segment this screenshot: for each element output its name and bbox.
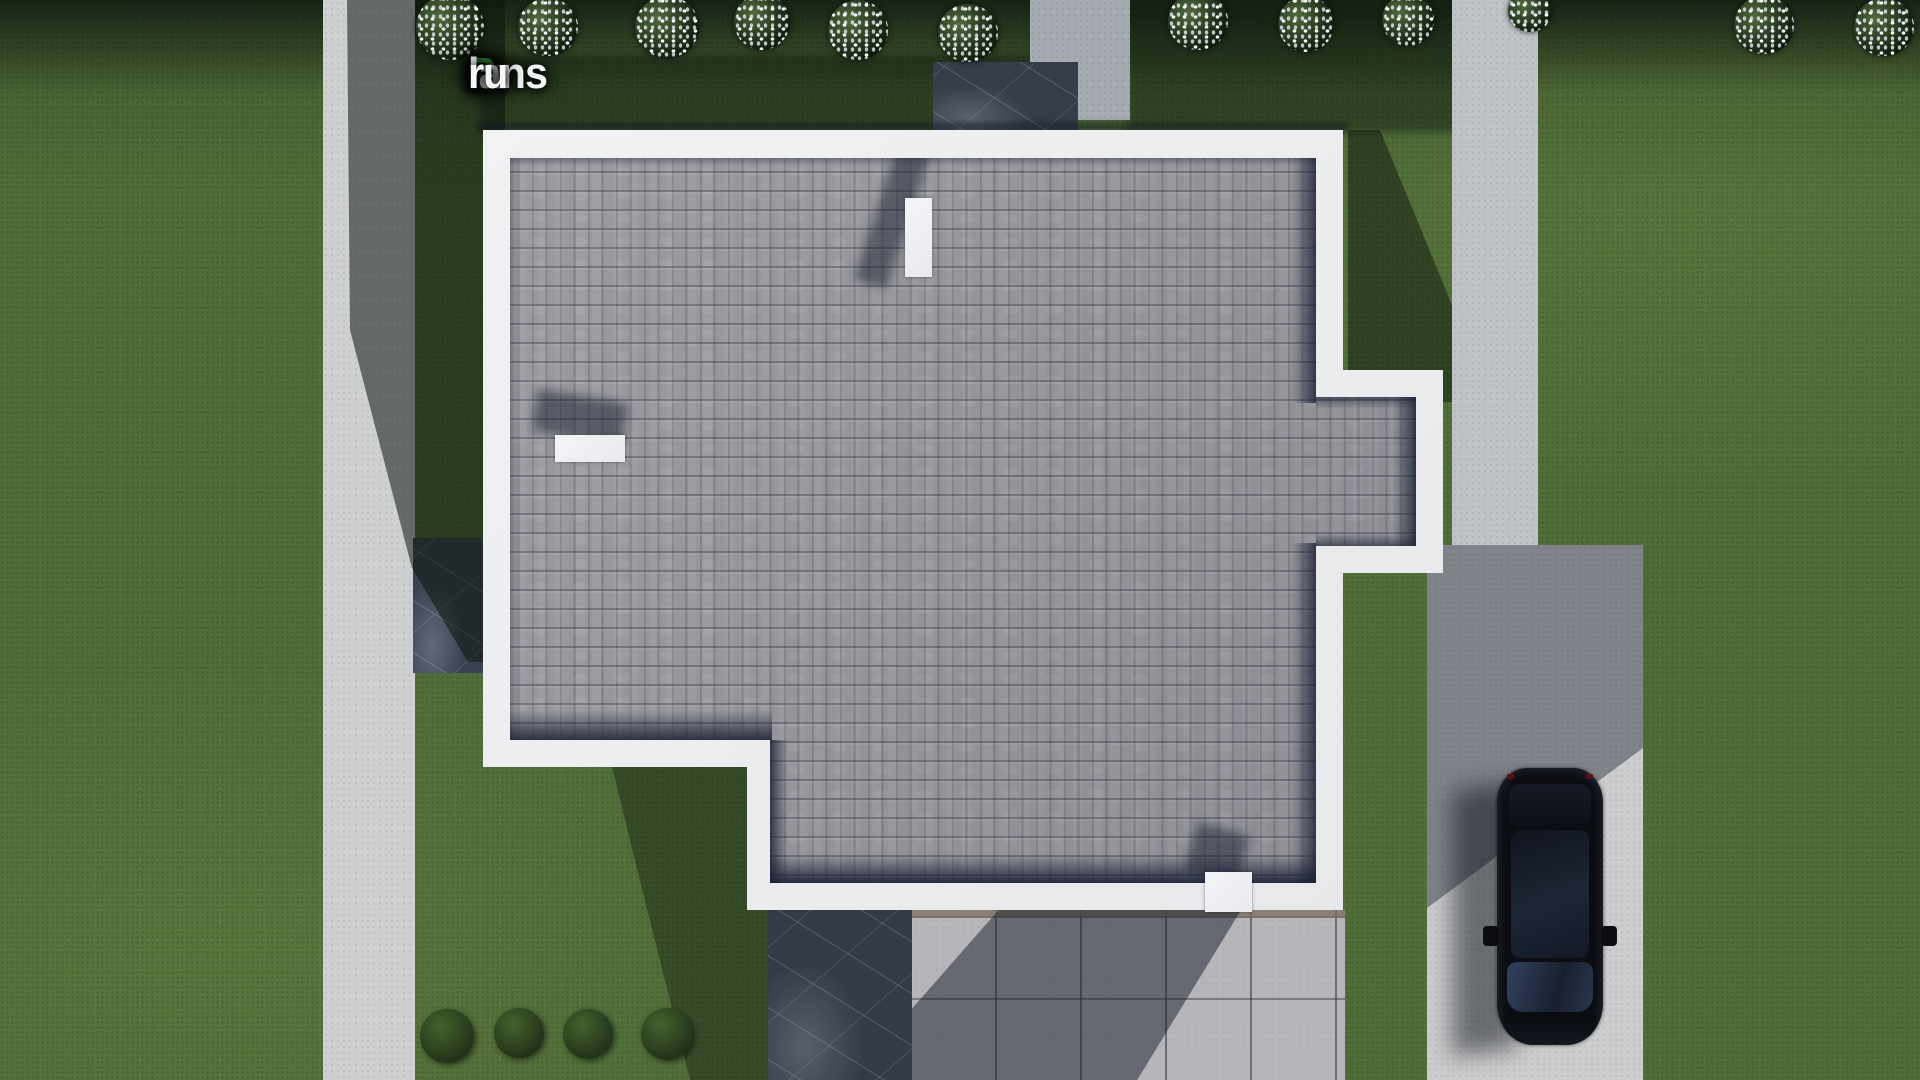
green-bush bbox=[641, 1008, 693, 1060]
car-taillight bbox=[1507, 774, 1514, 779]
roof-edge-shadow bbox=[1292, 158, 1316, 403]
site-plan-render: FixPlans.ru bbox=[0, 0, 1920, 1080]
green-bush bbox=[420, 1009, 474, 1063]
chimney-vent bbox=[1205, 872, 1252, 912]
parked-car bbox=[1497, 768, 1603, 1045]
roof-edge-shadow bbox=[510, 158, 518, 740]
roof-top-rim-shadow bbox=[476, 122, 1348, 131]
car-rear-window bbox=[1509, 784, 1591, 826]
flowering-bush bbox=[828, 0, 888, 60]
green-bush bbox=[494, 1008, 544, 1058]
logo-segment: ru bbox=[468, 48, 507, 100]
terrace-shadow bbox=[912, 910, 1345, 1080]
roof-edge-shadow bbox=[510, 710, 772, 740]
car-roof-glass bbox=[1511, 830, 1589, 958]
chimney-vent bbox=[555, 435, 625, 462]
roof-edge-shadow bbox=[1392, 397, 1416, 549]
roof-edge-shadow bbox=[1316, 533, 1416, 546]
green-bush bbox=[563, 1009, 613, 1059]
fixplans-logo: FixPlans.ru bbox=[468, 48, 722, 100]
car-hood bbox=[1503, 1014, 1597, 1041]
terrace-tiled bbox=[912, 910, 1345, 1080]
right-road bbox=[1452, 0, 1538, 546]
car-mirror bbox=[1601, 926, 1617, 946]
car-mirror bbox=[1483, 926, 1499, 946]
flowering-bush bbox=[938, 4, 998, 62]
roof-edge-shadow bbox=[1292, 543, 1316, 885]
terrace-dark-stone bbox=[768, 910, 912, 1080]
roof-edge-shadow bbox=[510, 158, 1316, 166]
chimney-vent bbox=[905, 198, 932, 277]
roof-edge-shadow bbox=[1316, 397, 1416, 409]
car-windshield bbox=[1507, 962, 1593, 1012]
flowering-bush bbox=[1854, 0, 1914, 56]
car-taillight bbox=[1586, 774, 1593, 779]
